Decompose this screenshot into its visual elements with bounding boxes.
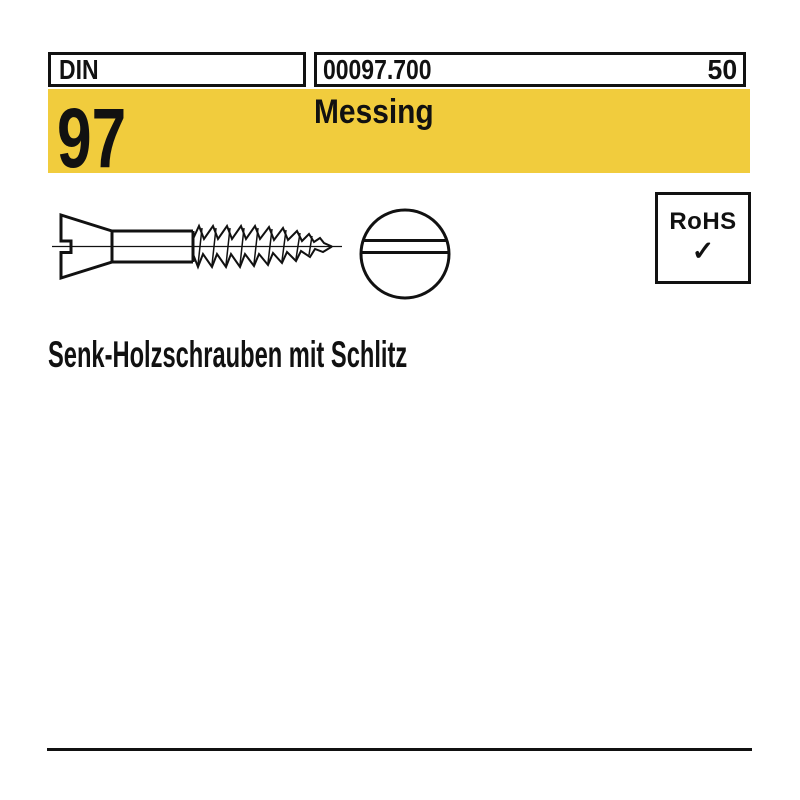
standard-banner: 97 Messing xyxy=(48,89,750,173)
rohs-badge: RoHS ✓ xyxy=(655,192,751,284)
screw-technical-drawing xyxy=(45,195,460,320)
page-number: 50 xyxy=(707,56,737,84)
rohs-label: RoHS xyxy=(669,209,736,235)
screw-slot-lines xyxy=(361,241,449,253)
header-din-cell: DIN xyxy=(48,52,306,87)
page-title: Senk-Holzschrauben mit Schlitz xyxy=(48,336,407,373)
header-number-cell: 00097.700 50 xyxy=(314,52,746,87)
material-label: Messing xyxy=(314,95,434,129)
bottom-divider xyxy=(47,748,752,751)
check-icon: ✓ xyxy=(692,237,715,267)
article-number: 00097.700 xyxy=(323,56,432,84)
din-label: DIN xyxy=(59,56,99,84)
catalog-page: DIN 00097.700 50 97 Messing RoHS ✓ Senk-… xyxy=(0,0,800,800)
standard-number: 97 xyxy=(57,96,126,180)
